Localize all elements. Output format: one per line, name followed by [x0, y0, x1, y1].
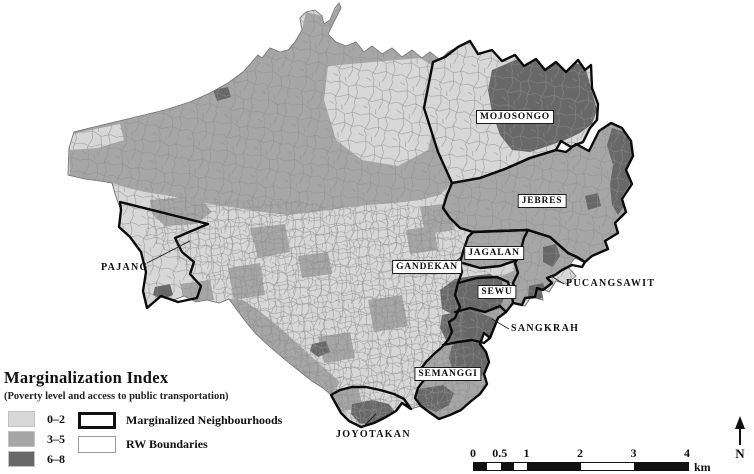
district-label-mojosongo: MOJOSONGO [476, 110, 554, 124]
district-label-sewu: SEWU [477, 285, 516, 299]
scale-tick: 0 [470, 446, 476, 461]
legend-class-row: 3–5 [8, 431, 65, 447]
marginalized-boundary-symbol [78, 412, 116, 429]
district-label-jebres: JEBRES [518, 194, 567, 208]
scale-unit-label: km [694, 460, 711, 474]
district-label-semanggi: SEMANGGI [414, 367, 481, 381]
district-label-pucangsawit: PUCANGSAWIT [566, 278, 655, 289]
district-label-pajang: PAJANG [101, 262, 149, 273]
class-0-2-swatch [8, 411, 35, 427]
scale-tick: 2 [577, 446, 583, 461]
north-arrow: N [726, 416, 754, 462]
class-0-2-label: 0–2 [47, 412, 65, 427]
class-3-5-label: 3–5 [47, 432, 65, 447]
scale-tick: 3 [631, 446, 637, 461]
district-label-sangkrah: SANGKRAH [511, 323, 579, 334]
legend-subtitle: (Poverty level and access to public tran… [4, 391, 229, 402]
class-3-5-swatch [8, 431, 35, 447]
class-6-8-label: 6–8 [47, 452, 65, 467]
choropleth-map [0, 0, 754, 474]
scale-tick: 4 [684, 446, 690, 461]
legend-class-row: 0–2 [8, 411, 65, 427]
scale-tick: 0.5 [492, 446, 507, 461]
marginalized-boundary-label: Marginalized Neighbourhoods [126, 413, 282, 428]
district-label-jagalan: JAGALAN [464, 246, 524, 260]
scale-tick: 1 [524, 446, 530, 461]
scale-bar: 0 0.5 1 2 3 4 km [473, 446, 713, 472]
map-figure: MOJOSONGO JEBRES JAGALAN GANDEKAN SEWU S… [0, 0, 754, 474]
north-label: N [726, 446, 754, 462]
rw-boundary-symbol [78, 436, 116, 453]
legend-boundary-row: Marginalized Neighbourhoods [78, 412, 282, 429]
legend-boundary-row: RW Boundaries [78, 436, 208, 453]
north-arrow-icon [735, 416, 745, 429]
district-label-joyotakan: JOYOTAKAN [336, 429, 411, 440]
scale-bar-segments [473, 462, 689, 471]
legend-class-row: 6–8 [8, 451, 65, 467]
class-6-8-swatch [8, 451, 35, 467]
rw-boundary-label: RW Boundaries [126, 437, 208, 452]
legend-title: Marginalization Index [4, 368, 168, 388]
district-label-gandekan: GANDEKAN [392, 260, 462, 274]
north-arrow-shaft [739, 429, 741, 445]
